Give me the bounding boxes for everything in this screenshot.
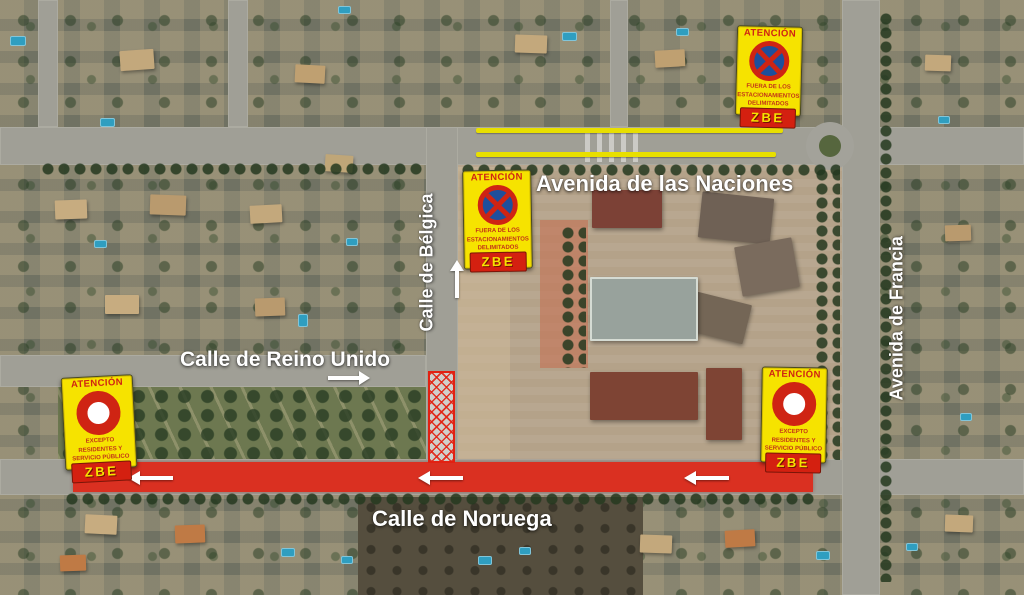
pool — [816, 551, 830, 560]
school-building — [590, 372, 698, 420]
house-roof — [250, 204, 283, 224]
pool — [10, 36, 26, 46]
sign-line: RESIDENTES Y — [78, 445, 122, 453]
direction-arrow-up-icon — [450, 260, 464, 298]
school-building — [706, 368, 742, 440]
sign-text: FUERA DE LOS ESTACIONAMIENTOS DELIMITADO… — [737, 83, 800, 109]
sign-line: FUERA DE LOS — [746, 84, 791, 91]
zbe-label: ZBE — [469, 251, 527, 273]
tree-row — [64, 492, 814, 505]
zbe-sign-no-parking-north: ATENCIÓN FUERA DE LOS ESTACIONAMIENTOS D… — [735, 25, 803, 117]
zbe-sign-no-parking-belgica: ATENCIÓN FUERA DE LOS ESTACIONAMIENTOS D… — [462, 169, 533, 269]
sign-line: ESTACIONAMIENTOS — [737, 92, 799, 100]
crosshatch-zone — [428, 371, 455, 463]
zbe-label: ZBE — [71, 460, 133, 484]
pool — [94, 240, 107, 248]
house-roof — [175, 524, 206, 543]
pool — [960, 413, 972, 421]
sign-line: ESTACIONAMIENTOS — [467, 236, 529, 243]
direction-arrow-left-icon — [128, 471, 174, 485]
no-entry-icon — [75, 390, 121, 436]
label-avenida-naciones: Avenida de las Naciones — [536, 171, 793, 197]
no-stopping-icon — [477, 185, 518, 226]
label-calle-reino-unido: Calle de Reino Unido — [180, 348, 390, 372]
house-roof — [725, 529, 756, 548]
sign-line: DELIMITADOS — [477, 244, 518, 251]
sign-line: RESIDENTES Y — [772, 437, 816, 444]
sign-line: EXCEPTO — [86, 438, 115, 445]
pool — [906, 543, 918, 551]
house-roof — [60, 555, 87, 572]
school-building — [698, 191, 774, 244]
pool — [346, 238, 358, 246]
pool — [676, 28, 689, 36]
house-roof — [255, 297, 286, 316]
street-minor-east — [610, 0, 628, 127]
school-sports-court — [590, 277, 698, 341]
house-roof — [105, 295, 139, 314]
house-roof — [945, 515, 974, 533]
label-avenida-francia: Avenida de Francia — [887, 241, 908, 401]
label-calle-belgica: Calle de Bélgica — [417, 193, 438, 333]
zbe-sign-no-entry-east: ATENCIÓN EXCEPTO RESIDENTES Y SERVICIO P… — [760, 366, 828, 463]
pool — [100, 118, 115, 127]
pool — [478, 556, 492, 565]
house-roof — [85, 514, 118, 535]
no-parking-line-south — [476, 152, 776, 157]
sign-header: ATENCIÓN — [744, 28, 796, 40]
no-entry-icon — [772, 382, 817, 427]
pool — [562, 32, 577, 41]
no-parking-line-north — [476, 128, 783, 133]
street-avenida-francia — [842, 0, 880, 595]
house-roof — [945, 225, 972, 242]
house-roof — [150, 194, 187, 215]
sign-text: EXCEPTO RESIDENTES Y SERVICIO PÚBLICO — [71, 436, 129, 463]
direction-arrow-left-icon — [418, 471, 464, 485]
sign-header: ATENCIÓN — [471, 173, 523, 184]
roundabout-island — [819, 135, 841, 157]
pool — [519, 547, 531, 555]
zbe-label: ZBE — [765, 452, 820, 474]
house-roof — [55, 199, 88, 219]
direction-arrow-right-icon — [328, 371, 370, 385]
no-stopping-icon — [749, 41, 790, 82]
sign-line: FUERA DE LOS — [475, 228, 520, 235]
sign-text: EXCEPTO RESIDENTES Y SERVICIO PÚBLICO — [765, 428, 823, 453]
sign-header: ATENCIÓN — [71, 378, 124, 391]
zbe-sign-no-entry-west: ATENCIÓN EXCEPTO RESIDENTES Y SERVICIO P… — [61, 374, 138, 471]
label-calle-noruega: Calle de Noruega — [372, 506, 552, 532]
house-roof — [640, 534, 673, 553]
pool — [341, 556, 353, 564]
direction-arrow-left-icon — [684, 471, 730, 485]
school-building — [734, 237, 800, 296]
tree-row — [40, 162, 426, 176]
sign-header: ATENCIÓN — [769, 370, 821, 381]
pool — [298, 314, 308, 327]
street-minor-mid — [228, 0, 248, 127]
crosswalk — [585, 130, 645, 162]
house-roof — [119, 49, 154, 71]
street-minor-west — [38, 0, 58, 127]
sign-line: DELIMITADOS — [748, 100, 789, 107]
pool — [338, 6, 351, 14]
sign-text: FUERA DE LOS ESTACIONAMIENTOS DELIMITADO… — [467, 227, 530, 252]
tree-row — [560, 226, 586, 368]
satellite-map: Avenida de las Naciones Calle de Bélgica… — [0, 0, 1024, 595]
house-roof — [655, 49, 686, 68]
zbe-label: ZBE — [740, 107, 796, 129]
house-roof — [515, 34, 548, 53]
pool — [281, 548, 295, 557]
house-roof — [295, 64, 326, 84]
sign-line: EXCEPTO — [779, 429, 808, 435]
house-roof — [925, 55, 952, 72]
sign-line: SERVICIO PÚBLICO — [765, 445, 822, 452]
pool — [938, 116, 950, 124]
